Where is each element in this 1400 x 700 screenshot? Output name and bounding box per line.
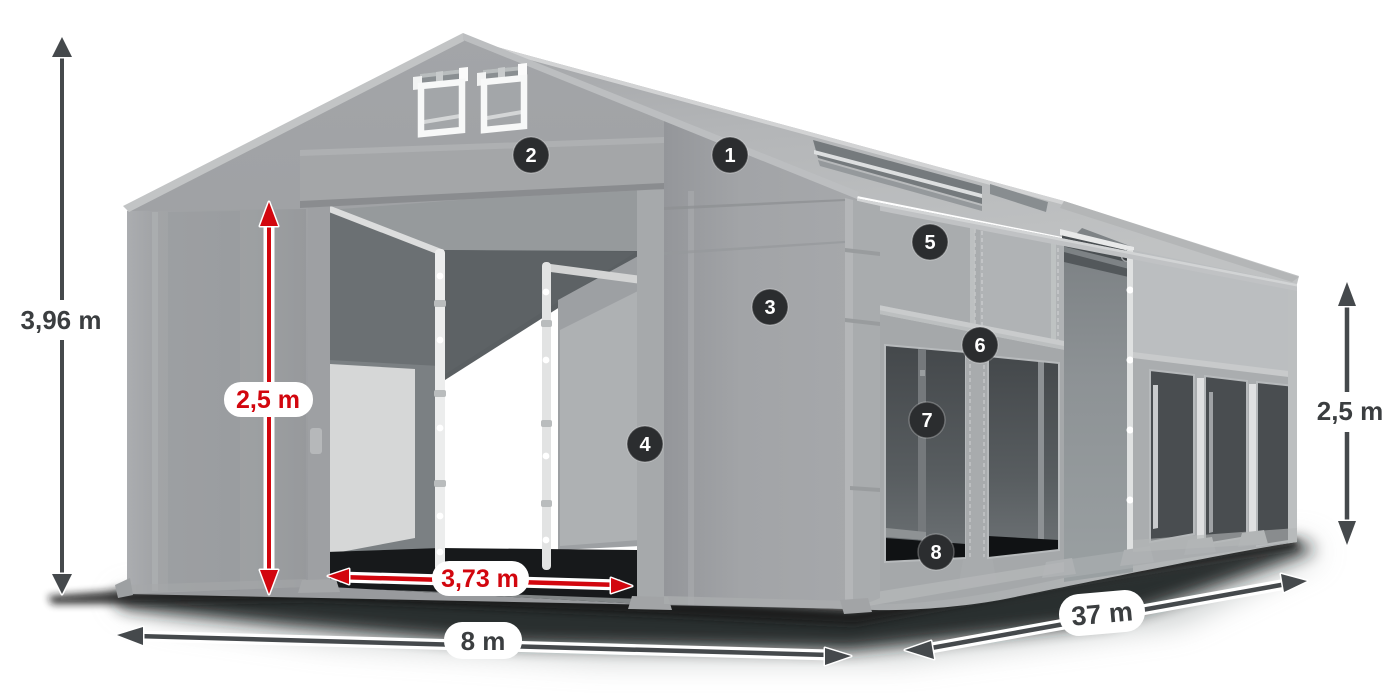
svg-text:2,5 m: 2,5 m — [1317, 396, 1384, 426]
svg-text:4: 4 — [639, 434, 651, 456]
svg-text:1: 1 — [724, 145, 735, 167]
svg-text:6: 6 — [974, 335, 985, 357]
svg-text:3,73 m: 3,73 m — [441, 565, 519, 593]
svg-text:7: 7 — [921, 410, 932, 432]
svg-text:5: 5 — [924, 232, 935, 254]
svg-text:3,96 m: 3,96 m — [21, 305, 102, 335]
svg-text:8 m: 8 m — [461, 626, 506, 656]
svg-text:37 m: 37 m — [1070, 596, 1134, 631]
svg-text:2: 2 — [525, 145, 536, 167]
svg-text:2,5 m: 2,5 m — [236, 386, 300, 414]
svg-text:8: 8 — [930, 542, 941, 564]
svg-text:3: 3 — [764, 297, 775, 319]
